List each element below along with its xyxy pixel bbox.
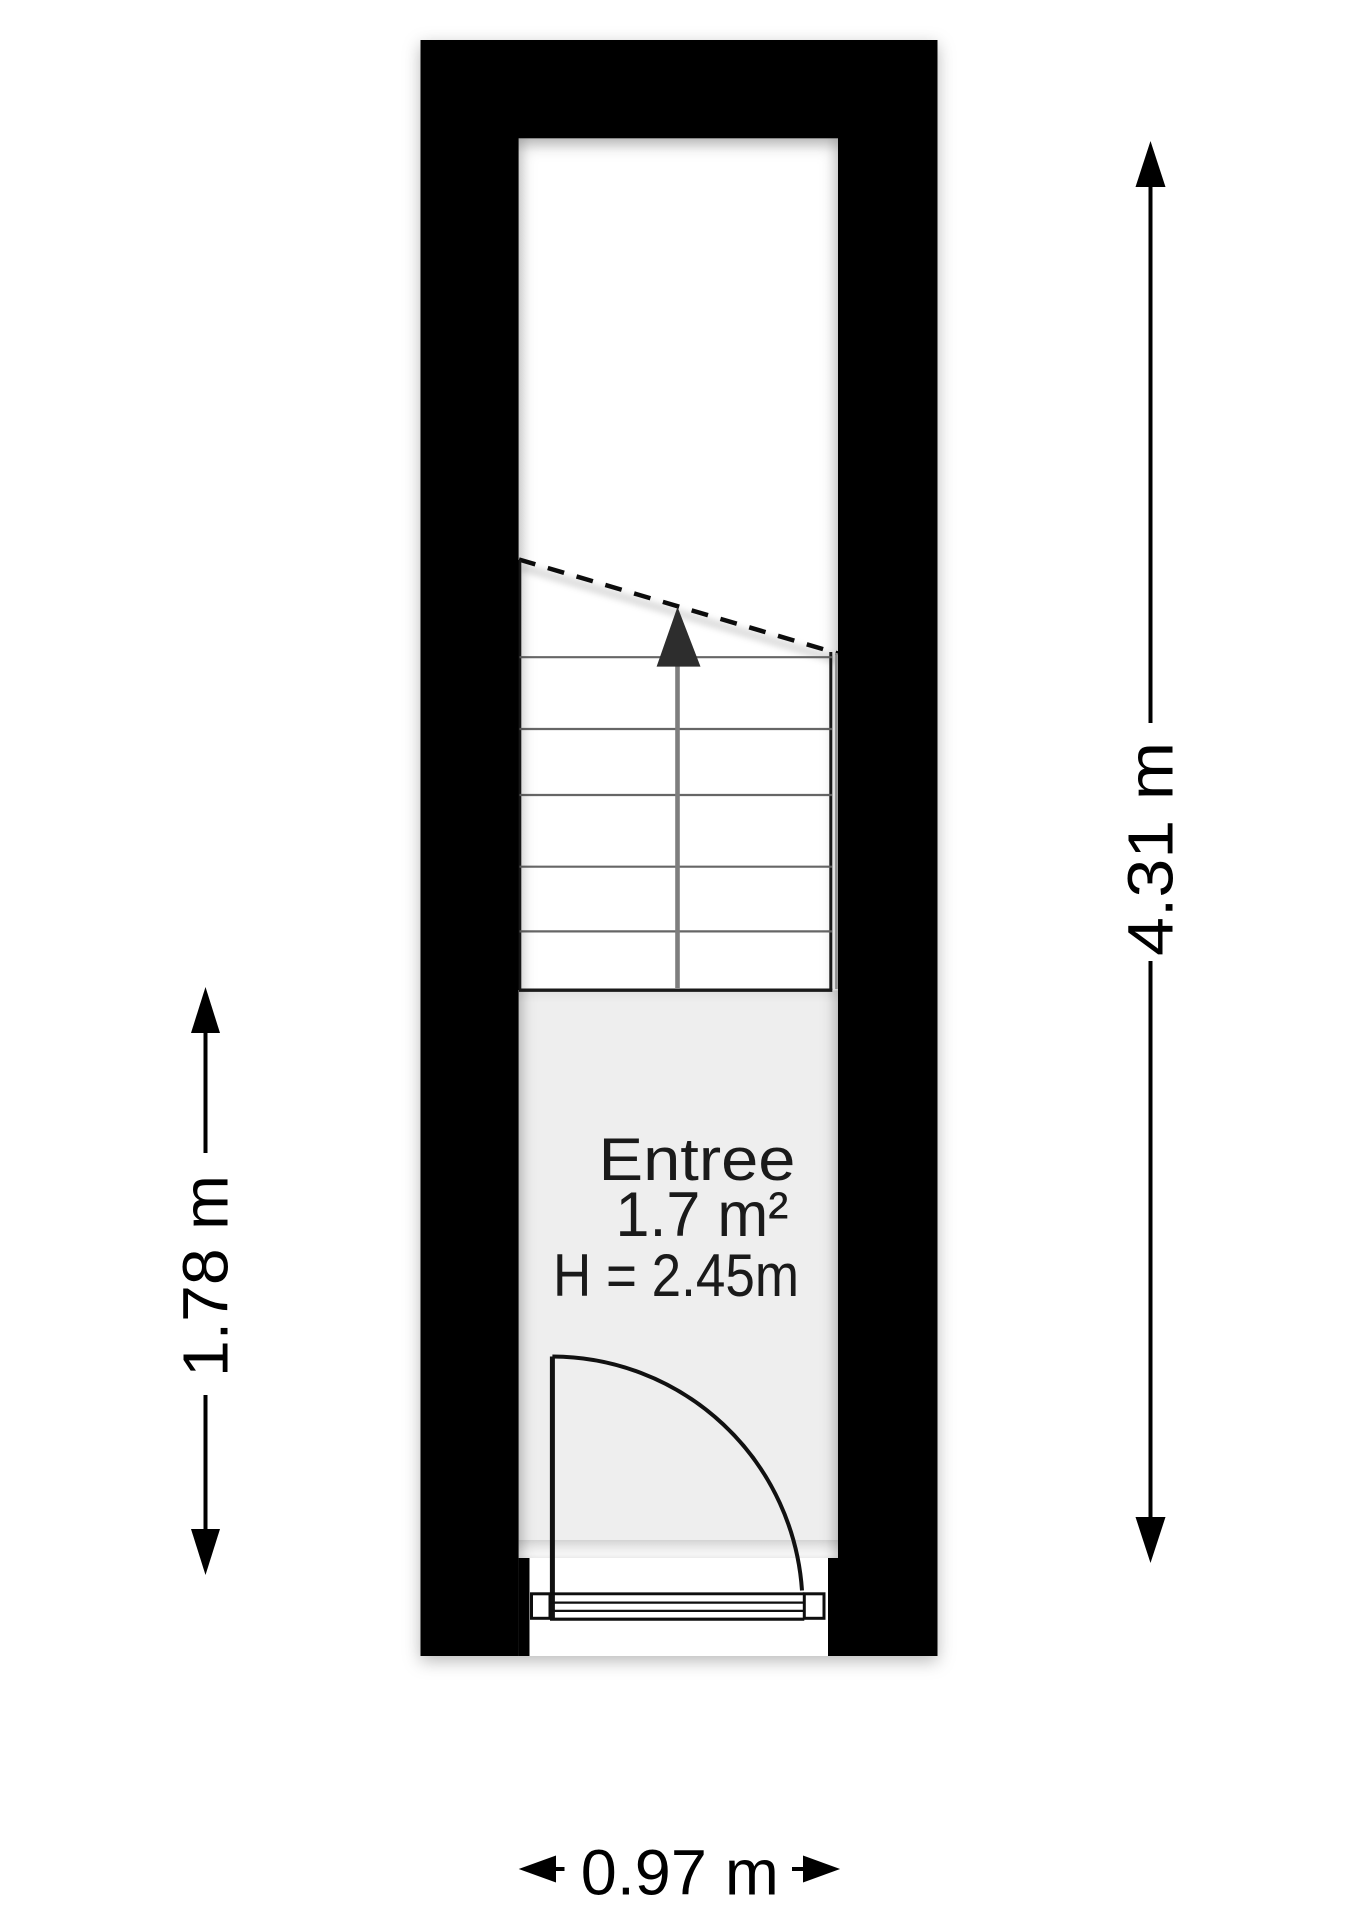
- svg-text:1.78 m: 1.78 m: [170, 1175, 242, 1377]
- svg-text:0.97 m: 0.97 m: [581, 1836, 779, 1908]
- svg-text:4.31 m: 4.31 m: [1115, 742, 1187, 956]
- svg-text:H = 2.45m: H = 2.45m: [553, 1242, 799, 1309]
- svg-text:1.7 m²: 1.7 m²: [616, 1180, 789, 1250]
